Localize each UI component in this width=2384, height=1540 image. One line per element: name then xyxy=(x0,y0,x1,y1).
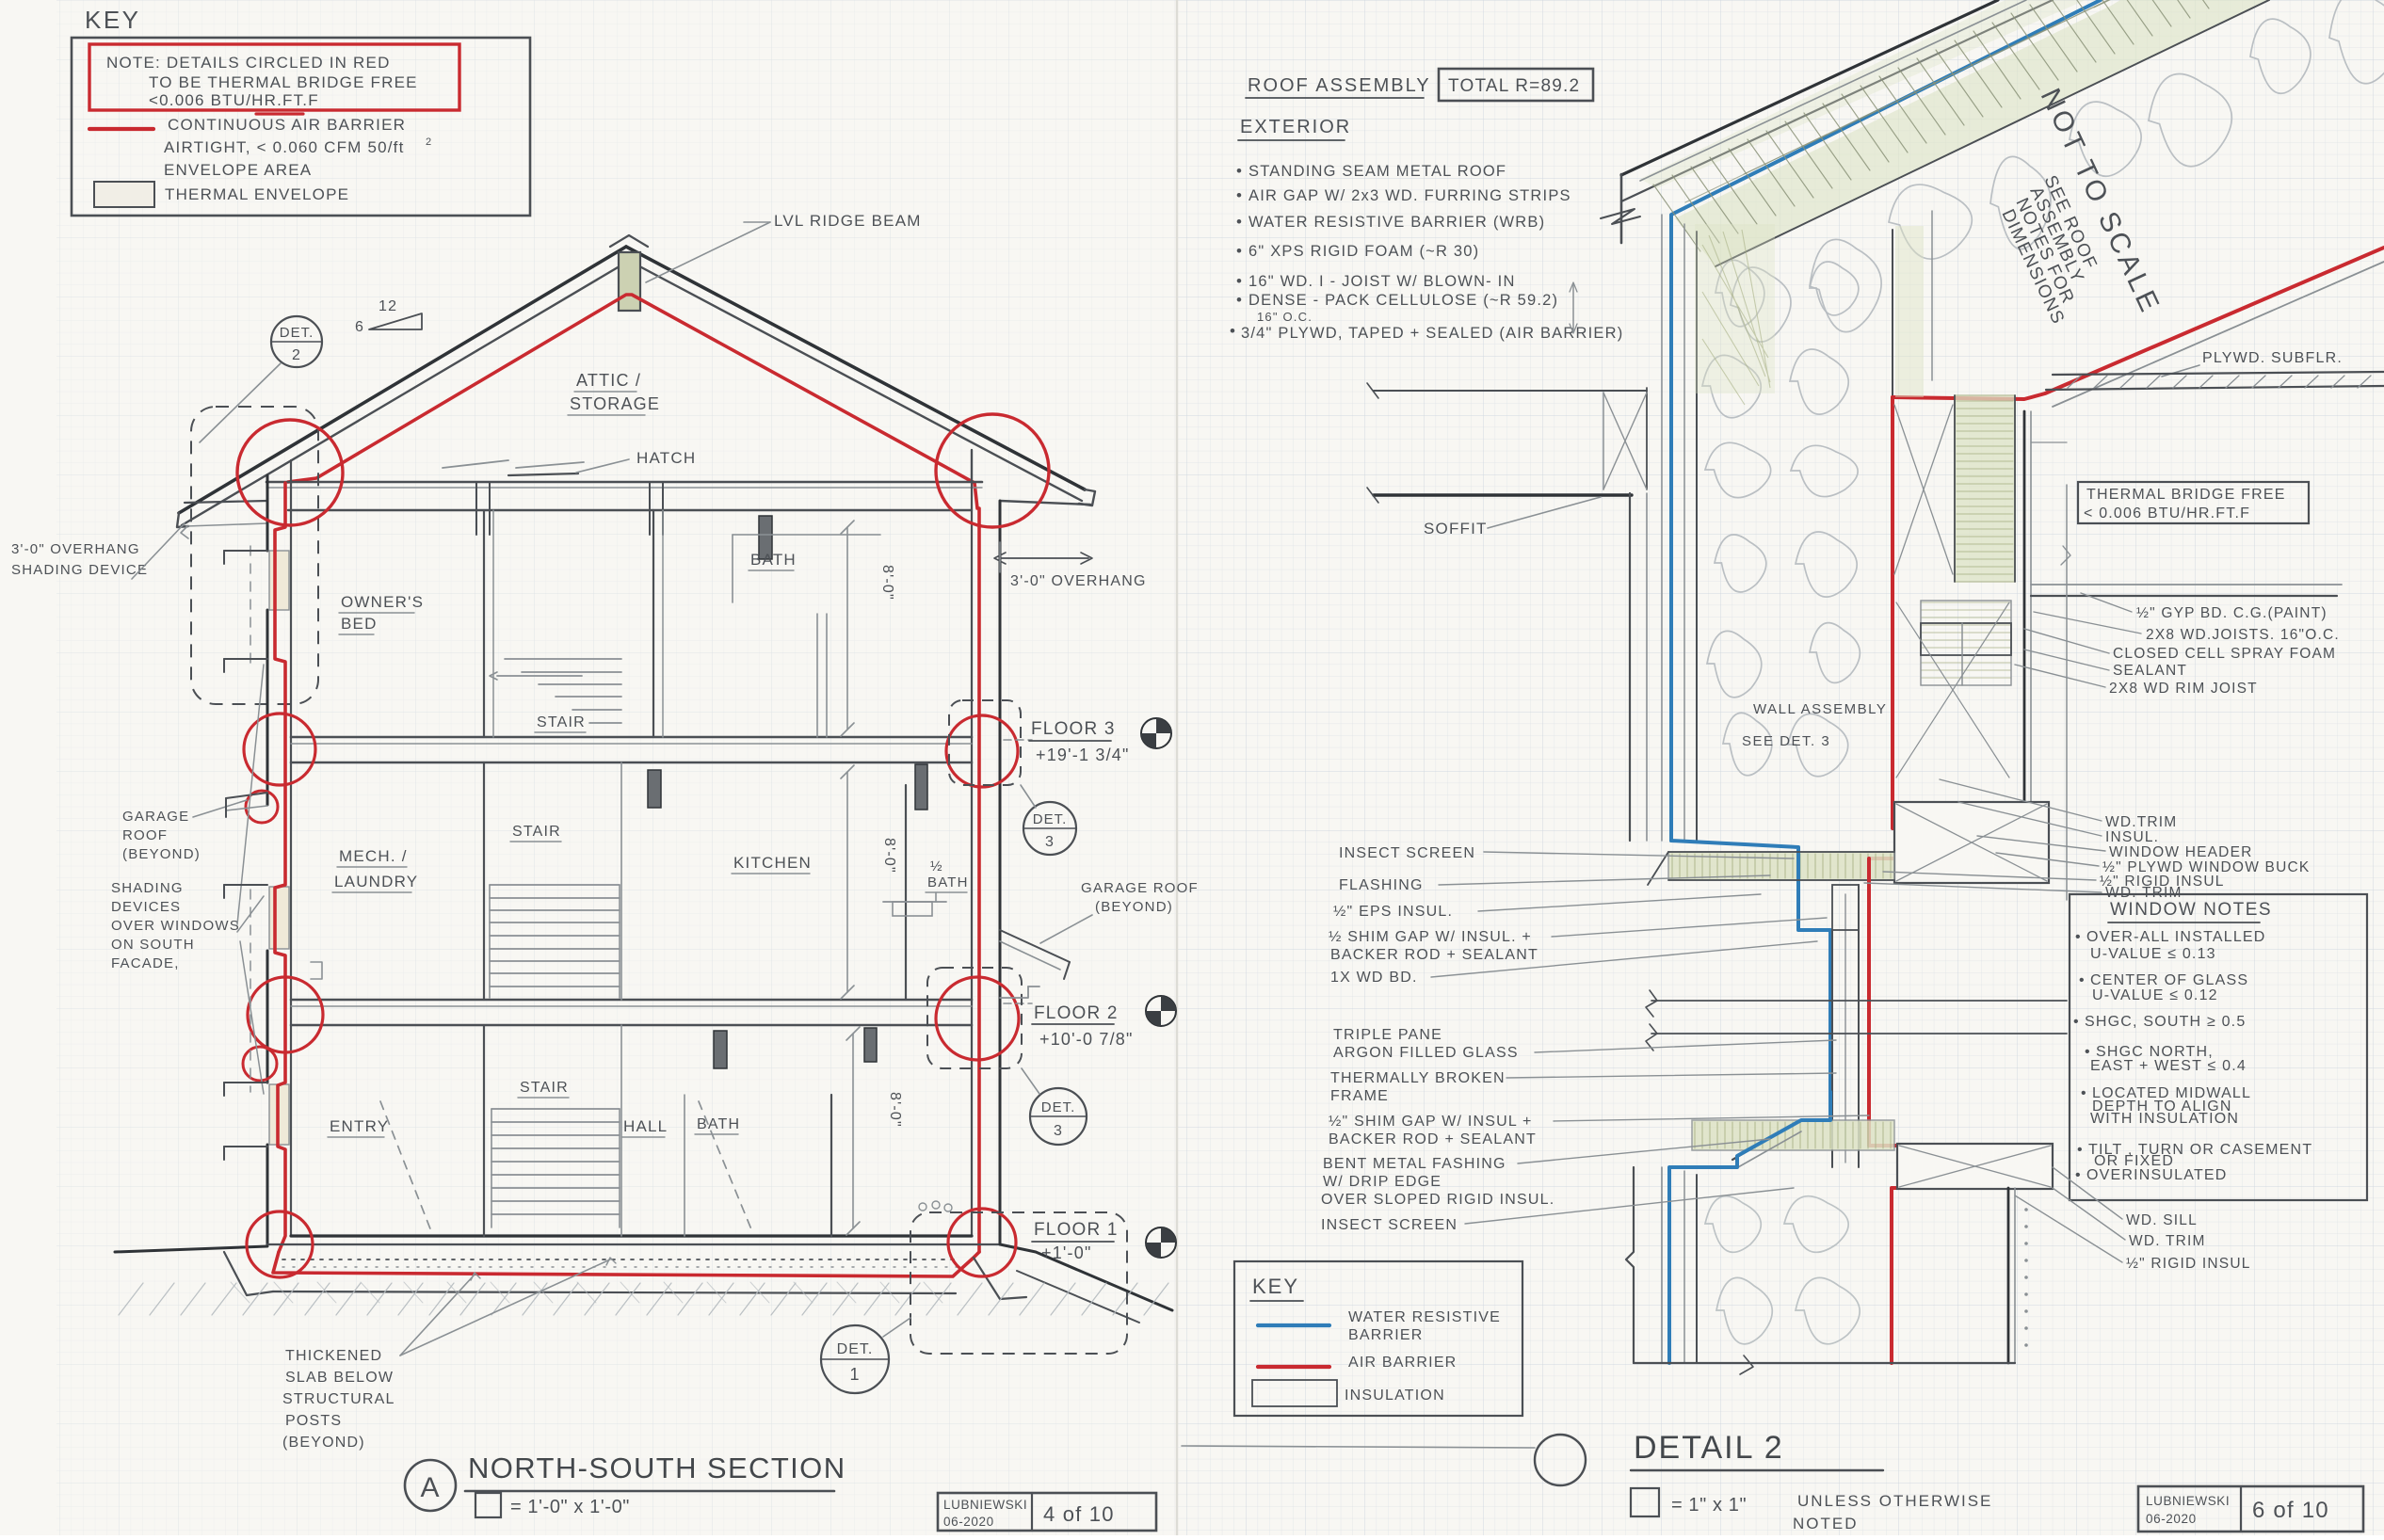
svg-text:ATTIC /: ATTIC / xyxy=(576,371,641,390)
svg-text:HALL: HALL xyxy=(623,1117,668,1135)
svg-text:06-2020: 06-2020 xyxy=(943,1515,994,1529)
svg-text:WATER RESISTIVE: WATER RESISTIVE xyxy=(1348,1309,1501,1325)
svg-text:•: • xyxy=(2073,1014,2080,1030)
svg-text:12: 12 xyxy=(379,298,397,314)
svg-text:U-VALUE ≤ 0.12: U-VALUE ≤ 0.12 xyxy=(2092,987,2218,1003)
svg-text:4 of 10: 4 of 10 xyxy=(1043,1502,1115,1526)
svg-text:ROOF ASSEMBLY: ROOF ASSEMBLY xyxy=(1248,75,1431,96)
svg-text:2: 2 xyxy=(426,136,432,148)
svg-text:EAST + WEST ≤ 0.4: EAST + WEST ≤ 0.4 xyxy=(2090,1058,2247,1074)
svg-text:8'-0": 8'-0" xyxy=(887,1092,903,1128)
svg-text:SHADING: SHADING xyxy=(111,880,184,896)
svg-text:CENTER OF GLASS: CENTER OF GLASS xyxy=(2090,972,2248,988)
svg-text:3: 3 xyxy=(1045,834,1055,850)
svg-text:OWNER'S: OWNER'S xyxy=(341,593,424,611)
svg-text:•: • xyxy=(2077,1142,2084,1158)
svg-text:< 0.006 BTU/HR.FT.F: < 0.006 BTU/HR.FT.F xyxy=(2084,505,2250,521)
svg-text:WATER RESISTIVE BARRIER (WRB): WATER RESISTIVE BARRIER (WRB) xyxy=(1248,214,1545,231)
svg-text:•: • xyxy=(2079,972,2086,988)
svg-text:STAIR: STAIR xyxy=(537,714,586,730)
svg-text:FLOOR 1: FLOOR 1 xyxy=(1034,1220,1119,1240)
svg-text:BED: BED xyxy=(341,615,378,633)
svg-text:DENSE - PACK CELLULOSE (~R 59.: DENSE - PACK CELLULOSE (~R 59.2) xyxy=(1248,292,1558,309)
svg-text:BATH: BATH xyxy=(697,1116,740,1132)
svg-text:STORAGE: STORAGE xyxy=(570,394,660,413)
svg-text:BATH: BATH xyxy=(927,874,969,890)
svg-text:BACKER ROD + SEALANT: BACKER ROD + SEALANT xyxy=(1330,947,1538,963)
svg-text:BATH: BATH xyxy=(750,551,797,569)
svg-text:½" RIGID INSUL: ½" RIGID INSUL xyxy=(2126,1256,2251,1272)
svg-text:•: • xyxy=(1236,291,1243,309)
svg-text:STAIR: STAIR xyxy=(520,1080,569,1096)
svg-text:DET.: DET. xyxy=(280,325,314,341)
svg-text:GARAGE: GARAGE xyxy=(122,809,189,825)
svg-text:6" XPS RIGID FOAM (~R 30): 6" XPS RIGID FOAM (~R 30) xyxy=(1248,243,1479,260)
svg-text:WITH INSULATION: WITH INSULATION xyxy=(2090,1111,2239,1127)
svg-text:EXTERIOR: EXTERIOR xyxy=(1240,117,1351,137)
svg-text:•: • xyxy=(2075,929,2082,945)
svg-text:BARRIER: BARRIER xyxy=(1348,1327,1424,1343)
svg-text:SEE DET. 3: SEE DET. 3 xyxy=(1742,733,1830,749)
svg-text:½: ½ xyxy=(930,858,943,874)
svg-text:BENT METAL FASHING: BENT METAL FASHING xyxy=(1323,1156,1506,1172)
svg-text:= 1'-0" x 1'-0": = 1'-0" x 1'-0" xyxy=(510,1497,630,1517)
svg-text:3: 3 xyxy=(1054,1123,1063,1139)
svg-text:NORTH-SOUTH SECTION: NORTH-SOUTH SECTION xyxy=(468,1452,846,1484)
svg-text:STRUCTURAL: STRUCTURAL xyxy=(282,1391,395,1407)
svg-text:½ SHIM GAP W/ INSUL. +: ½ SHIM GAP W/ INSUL. + xyxy=(1329,929,1532,945)
svg-text:2: 2 xyxy=(292,347,301,363)
svg-text:FACADE,: FACADE, xyxy=(111,955,180,971)
svg-text:ENVELOPE AREA: ENVELOPE AREA xyxy=(164,161,312,179)
svg-text:OVER-ALL INSTALLED: OVER-ALL INSTALLED xyxy=(2086,929,2266,945)
svg-text:INSUL.: INSUL. xyxy=(2105,829,2159,845)
svg-text:THERMALLY BROKEN: THERMALLY BROKEN xyxy=(1330,1070,1506,1086)
svg-text:LUBNIEWSKI: LUBNIEWSKI xyxy=(2146,1494,2230,1508)
svg-text:ARGON FILLED GLASS: ARGON FILLED GLASS xyxy=(1333,1045,1519,1061)
svg-text:•: • xyxy=(1230,322,1236,340)
svg-text:(BEYOND): (BEYOND) xyxy=(282,1435,365,1451)
svg-text:UNLESS OTHERWISE: UNLESS OTHERWISE xyxy=(1797,1492,1992,1510)
svg-text:8'-0": 8'-0" xyxy=(881,838,897,874)
svg-text:INSULATION: INSULATION xyxy=(1345,1388,1445,1404)
svg-text:LVL RIDGE BEAM: LVL RIDGE BEAM xyxy=(774,212,922,230)
svg-text:STAIR: STAIR xyxy=(512,824,561,840)
svg-text:THERMAL ENVELOPE: THERMAL ENVELOPE xyxy=(165,185,349,203)
svg-text:1X WD BD.: 1X WD BD. xyxy=(1330,970,1418,986)
svg-text:THICKENED: THICKENED xyxy=(285,1348,382,1364)
svg-text:WD.TRIM: WD.TRIM xyxy=(2105,814,2177,830)
svg-text:INSECT SCREEN: INSECT SCREEN xyxy=(1339,845,1475,861)
svg-text:PLYWD. SUBFLR.: PLYWD. SUBFLR. xyxy=(2202,350,2343,366)
svg-text:SEALANT: SEALANT xyxy=(2113,663,2187,679)
svg-text:16" O.C.: 16" O.C. xyxy=(1257,310,1313,324)
svg-text:MECH. /: MECH. / xyxy=(339,847,408,865)
svg-text:STANDING SEAM METAL ROOF: STANDING SEAM METAL ROOF xyxy=(1248,163,1506,180)
svg-text:OVERINSULATED: OVERINSULATED xyxy=(2086,1167,2228,1183)
svg-text:GARAGE ROOF: GARAGE ROOF xyxy=(1081,880,1199,896)
svg-text:2X8 WD.JOISTS. 16"O.C.: 2X8 WD.JOISTS. 16"O.C. xyxy=(2146,627,2340,643)
svg-text:6: 6 xyxy=(355,319,364,335)
svg-text:(BEYOND): (BEYOND) xyxy=(122,846,201,862)
svg-text:A: A xyxy=(420,1472,440,1503)
svg-text:OVER WINDOWS: OVER WINDOWS xyxy=(111,918,240,934)
svg-text:FLASHING: FLASHING xyxy=(1339,877,1424,893)
svg-text:DEVICES: DEVICES xyxy=(111,899,181,915)
svg-text:AIRTIGHT, < 0.060 CFM 50/ft: AIRTIGHT, < 0.060 CFM 50/ft xyxy=(164,138,405,156)
svg-text:SHGC, SOUTH ≥ 0.5: SHGC, SOUTH ≥ 0.5 xyxy=(2085,1014,2246,1030)
svg-text:•: • xyxy=(1236,272,1243,290)
svg-text:THERMAL BRIDGE FREE: THERMAL BRIDGE FREE xyxy=(2086,487,2286,503)
svg-text:TO BE THERMAL BRIDGE FREE: TO BE THERMAL BRIDGE FREE xyxy=(149,73,418,91)
svg-text:ROOF: ROOF xyxy=(122,827,168,843)
svg-text:<0.006 BTU/HR.FT.F: <0.006 BTU/HR.FT.F xyxy=(149,91,319,109)
svg-text:1: 1 xyxy=(849,1365,860,1384)
svg-text:WALL ASSEMBLY: WALL ASSEMBLY xyxy=(1753,701,1887,717)
svg-text:½" SHIM GAP W/ INSUL +: ½" SHIM GAP W/ INSUL + xyxy=(1329,1114,1533,1130)
svg-text:DET.: DET. xyxy=(1033,811,1068,827)
svg-text:+10'-0 7/8": +10'-0 7/8" xyxy=(1039,1030,1134,1049)
svg-text:FRAME: FRAME xyxy=(1330,1088,1389,1104)
svg-text:SHADING DEVICE: SHADING DEVICE xyxy=(11,562,148,578)
svg-text:WD. TRIM: WD. TRIM xyxy=(2129,1233,2206,1249)
svg-text:•: • xyxy=(1236,213,1243,231)
svg-text:2X8 WD RIM JOIST: 2X8 WD RIM JOIST xyxy=(2109,681,2258,697)
svg-text:DET.: DET. xyxy=(1041,1099,1076,1115)
svg-text:•: • xyxy=(1236,186,1243,204)
svg-text:½" EPS INSUL.: ½" EPS INSUL. xyxy=(1333,904,1453,920)
svg-text:INSECT SCREEN: INSECT SCREEN xyxy=(1321,1217,1458,1233)
svg-text:3/4" PLYWD, TAPED + SEALED (AI: 3/4" PLYWD, TAPED + SEALED (AIR BARRIER) xyxy=(1241,325,1623,342)
svg-text:•: • xyxy=(2081,1085,2087,1101)
svg-text:NOTED: NOTED xyxy=(1793,1515,1859,1532)
svg-text:AIR GAP W/ 2x3 WD. FURRING STR: AIR GAP W/ 2x3 WD. FURRING STRIPS xyxy=(1248,187,1571,204)
svg-text:TRIPLE PANE: TRIPLE PANE xyxy=(1333,1027,1442,1043)
svg-text:•: • xyxy=(2075,1167,2082,1183)
svg-text:3'-0" OVERHANG: 3'-0" OVERHANG xyxy=(11,541,140,557)
svg-text:WINDOW NOTES: WINDOW NOTES xyxy=(2110,900,2272,920)
svg-text:(BEYOND): (BEYOND) xyxy=(1095,899,1173,915)
svg-text:DETAIL 2: DETAIL 2 xyxy=(1634,1430,1784,1466)
svg-text:KEY: KEY xyxy=(85,6,141,34)
svg-text:FLOOR 2: FLOOR 2 xyxy=(1034,1003,1119,1023)
svg-text:FLOOR 3: FLOOR 3 xyxy=(1031,719,1116,739)
svg-text:•: • xyxy=(1236,242,1243,260)
svg-text:SLAB BELOW: SLAB BELOW xyxy=(285,1370,394,1386)
svg-text:+1'-0": +1'-0" xyxy=(1041,1243,1092,1262)
svg-text:KITCHEN: KITCHEN xyxy=(733,854,812,872)
svg-text:HATCH: HATCH xyxy=(636,449,696,467)
svg-text:+19'-1 3/4": +19'-1 3/4" xyxy=(1036,746,1130,764)
svg-text:LAUNDRY: LAUNDRY xyxy=(334,873,418,890)
svg-text:NOTE: DETAILS CIRCLED IN RED: NOTE: DETAILS CIRCLED IN RED xyxy=(106,54,391,72)
svg-text:TOTAL R=89.2: TOTAL R=89.2 xyxy=(1448,76,1580,96)
svg-text:3'-0" OVERHANG: 3'-0" OVERHANG xyxy=(1010,573,1147,589)
svg-text:8'-0": 8'-0" xyxy=(879,565,895,601)
svg-text:U-VALUE ≤ 0.13: U-VALUE ≤ 0.13 xyxy=(2090,946,2216,962)
svg-text:WD. TRIM: WD. TRIM xyxy=(2105,885,2183,901)
svg-text:ENTRY: ENTRY xyxy=(330,1117,389,1135)
svg-text:SOFFIT: SOFFIT xyxy=(1424,520,1488,537)
svg-text:CONTINUOUS AIR BARRIER: CONTINUOUS AIR BARRIER xyxy=(168,116,406,134)
svg-text:LUBNIEWSKI: LUBNIEWSKI xyxy=(943,1498,1027,1512)
svg-text:POSTS: POSTS xyxy=(285,1413,342,1429)
svg-text:WINDOW HEADER: WINDOW HEADER xyxy=(2109,844,2253,860)
svg-text:= 1" x 1": = 1" x 1" xyxy=(1671,1495,1747,1516)
svg-text:AIR BARRIER: AIR BARRIER xyxy=(1348,1355,1457,1371)
svg-text:OVER SLOPED RIGID INSUL.: OVER SLOPED RIGID INSUL. xyxy=(1321,1192,1554,1208)
svg-text:DET.: DET. xyxy=(837,1341,874,1357)
svg-text:BACKER ROD + SEALANT: BACKER ROD + SEALANT xyxy=(1329,1131,1537,1147)
svg-text:½" GYP BD. C.G.(PAINT): ½" GYP BD. C.G.(PAINT) xyxy=(2136,605,2328,621)
svg-text:CLOSED CELL SPRAY FOAM: CLOSED CELL SPRAY FOAM xyxy=(2113,646,2336,662)
svg-text:WD. SILL: WD. SILL xyxy=(2126,1212,2198,1228)
svg-text:16" WD. I - JOIST W/ BLOWN- IN: 16" WD. I - JOIST W/ BLOWN- IN xyxy=(1248,273,1516,290)
svg-text:KEY: KEY xyxy=(1252,1275,1299,1298)
svg-text:06-2020: 06-2020 xyxy=(2146,1512,2197,1526)
svg-text:6 of 10: 6 of 10 xyxy=(2252,1498,2329,1523)
svg-text:ON SOUTH: ON SOUTH xyxy=(111,937,195,953)
svg-text:W/ DRIP EDGE: W/ DRIP EDGE xyxy=(1323,1174,1442,1190)
svg-text:•: • xyxy=(1236,162,1243,180)
